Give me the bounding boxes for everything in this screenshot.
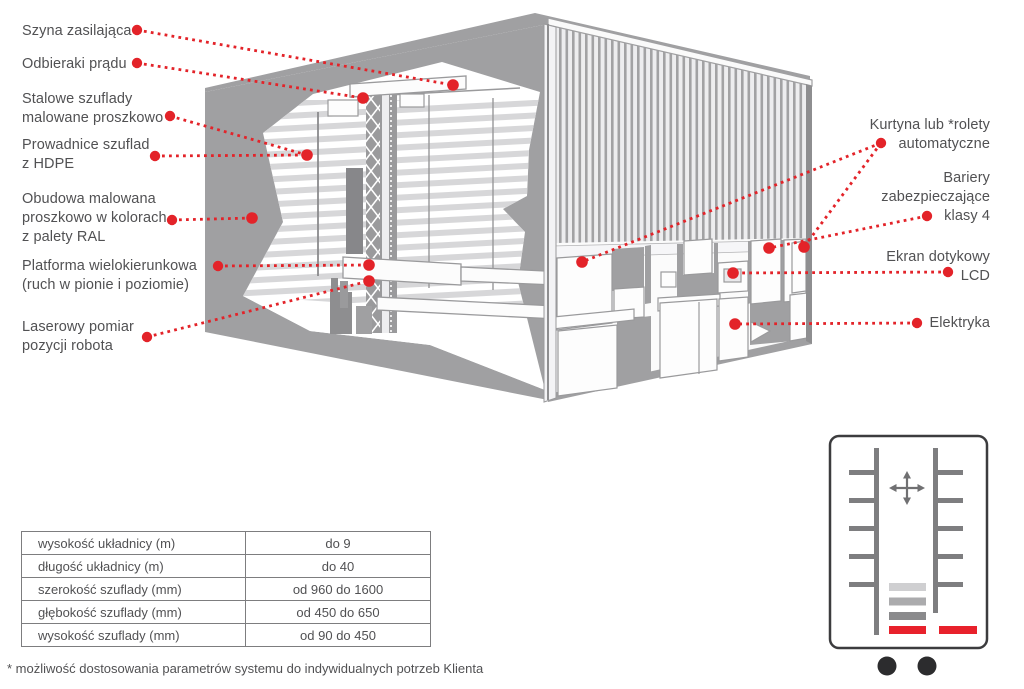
label-dot — [167, 215, 177, 225]
target-dot — [363, 259, 375, 271]
target-dot — [246, 212, 258, 224]
spec-param: długość układnicy (m) — [22, 555, 246, 578]
spec-value: do 9 — [246, 532, 431, 555]
shelf-arm — [938, 498, 963, 503]
spec-value: do 40 — [246, 555, 431, 578]
shelf-arm — [849, 554, 874, 559]
label-dot — [142, 332, 152, 342]
inner-side-panel — [346, 168, 363, 254]
label-odbieraki-pradu: Odbieraki prądu — [22, 55, 127, 74]
shelf-arm — [849, 498, 874, 503]
table-row: głębokość szuflady (mm) od 450 do 650 — [22, 601, 431, 624]
cabinet-panel — [558, 325, 617, 396]
current-collector-box — [328, 100, 358, 116]
red-drawer — [939, 626, 977, 634]
target-dot — [727, 267, 739, 279]
shelf-arm — [938, 554, 963, 559]
label-dot — [165, 111, 175, 121]
table-row: wysokość szuflady (mm) od 90 do 450 — [22, 624, 431, 647]
footnote: * możliwość dostosowania parametrów syst… — [7, 661, 483, 676]
spec-value: od 90 do 450 — [246, 624, 431, 647]
label-dot — [132, 58, 142, 68]
table-row: szerokość szuflady (mm) od 960 do 1600 — [22, 578, 431, 601]
right-corner-band — [806, 84, 812, 344]
machine-illustration — [205, 13, 812, 402]
label-szyna-zasilajaca: Szyna zasilająca — [22, 22, 132, 41]
label-bariery: Bariery zabezpieczające klasy 4 — [881, 169, 990, 226]
current-collector-box — [400, 94, 424, 107]
target-dot — [301, 149, 313, 161]
label-dot — [213, 261, 223, 271]
shelf-arm — [849, 526, 874, 531]
label-ekran-dotykowy: Ekran dotykowy LCD — [886, 248, 990, 286]
shelf-arm — [938, 582, 963, 587]
button-panel — [661, 272, 676, 287]
shelf-arm — [938, 526, 963, 531]
spec-value: od 960 do 1600 — [246, 578, 431, 601]
spec-param: wysokość układnicy (m) — [22, 532, 246, 555]
wheel — [878, 657, 897, 676]
spec-param: szerokość szuflady (mm) — [22, 578, 246, 601]
target-dot — [729, 318, 741, 330]
spec-value: od 450 do 650 — [246, 601, 431, 624]
target-dot — [357, 92, 369, 104]
wheel — [918, 657, 937, 676]
spec-table: wysokość układnicy (m) do 9 długość ukła… — [21, 531, 431, 647]
spec-param: wysokość szuflady (mm) — [22, 624, 246, 647]
label-prowadnice-szuflad: Prowadnice szuflad z HDPE — [22, 136, 150, 174]
label-elektryka: Elektryka — [929, 314, 990, 333]
table-row: długość układnicy (m) do 40 — [22, 555, 431, 578]
label-dot — [150, 151, 160, 161]
lift-mast — [366, 88, 397, 333]
shelf-arm — [849, 470, 874, 475]
label-kurtyna: Kurtyna lub *rolety automatyczne — [870, 116, 990, 154]
target-dot — [763, 242, 775, 254]
table-row: wysokość układnicy (m) do 9 — [22, 532, 431, 555]
label-dot — [912, 318, 922, 328]
cabinet-panel — [790, 293, 807, 341]
spec-param: głębokość szuflady (mm) — [22, 601, 246, 624]
leader-line — [804, 143, 881, 247]
target-dot — [798, 241, 810, 253]
shelf-arm — [938, 470, 963, 475]
storage-lift-schematic-icon — [830, 436, 987, 676]
label-platforma: Platforma wielokierunkowa (ruch w pionie… — [22, 257, 197, 295]
target-dot — [363, 275, 375, 287]
target-dot — [576, 256, 588, 268]
label-laserowy-pomiar: Laserowy pomiar pozycji robota — [22, 318, 134, 356]
label-stalowe-szuflady: Stalowe szuflady malowane proszkowo — [22, 90, 163, 128]
cabinet-door — [660, 299, 717, 378]
cabinet-panel — [684, 239, 712, 275]
label-obudowa-malowana: Obudowa malowana proszkowo w kolorach z … — [22, 190, 167, 247]
target-dot — [447, 79, 459, 91]
red-drawer — [889, 626, 926, 634]
shelf-arm — [849, 582, 874, 587]
leader-line — [735, 323, 917, 324]
left-corner-post — [544, 24, 556, 402]
label-dot — [132, 25, 142, 35]
curtain-slats — [556, 26, 806, 243]
